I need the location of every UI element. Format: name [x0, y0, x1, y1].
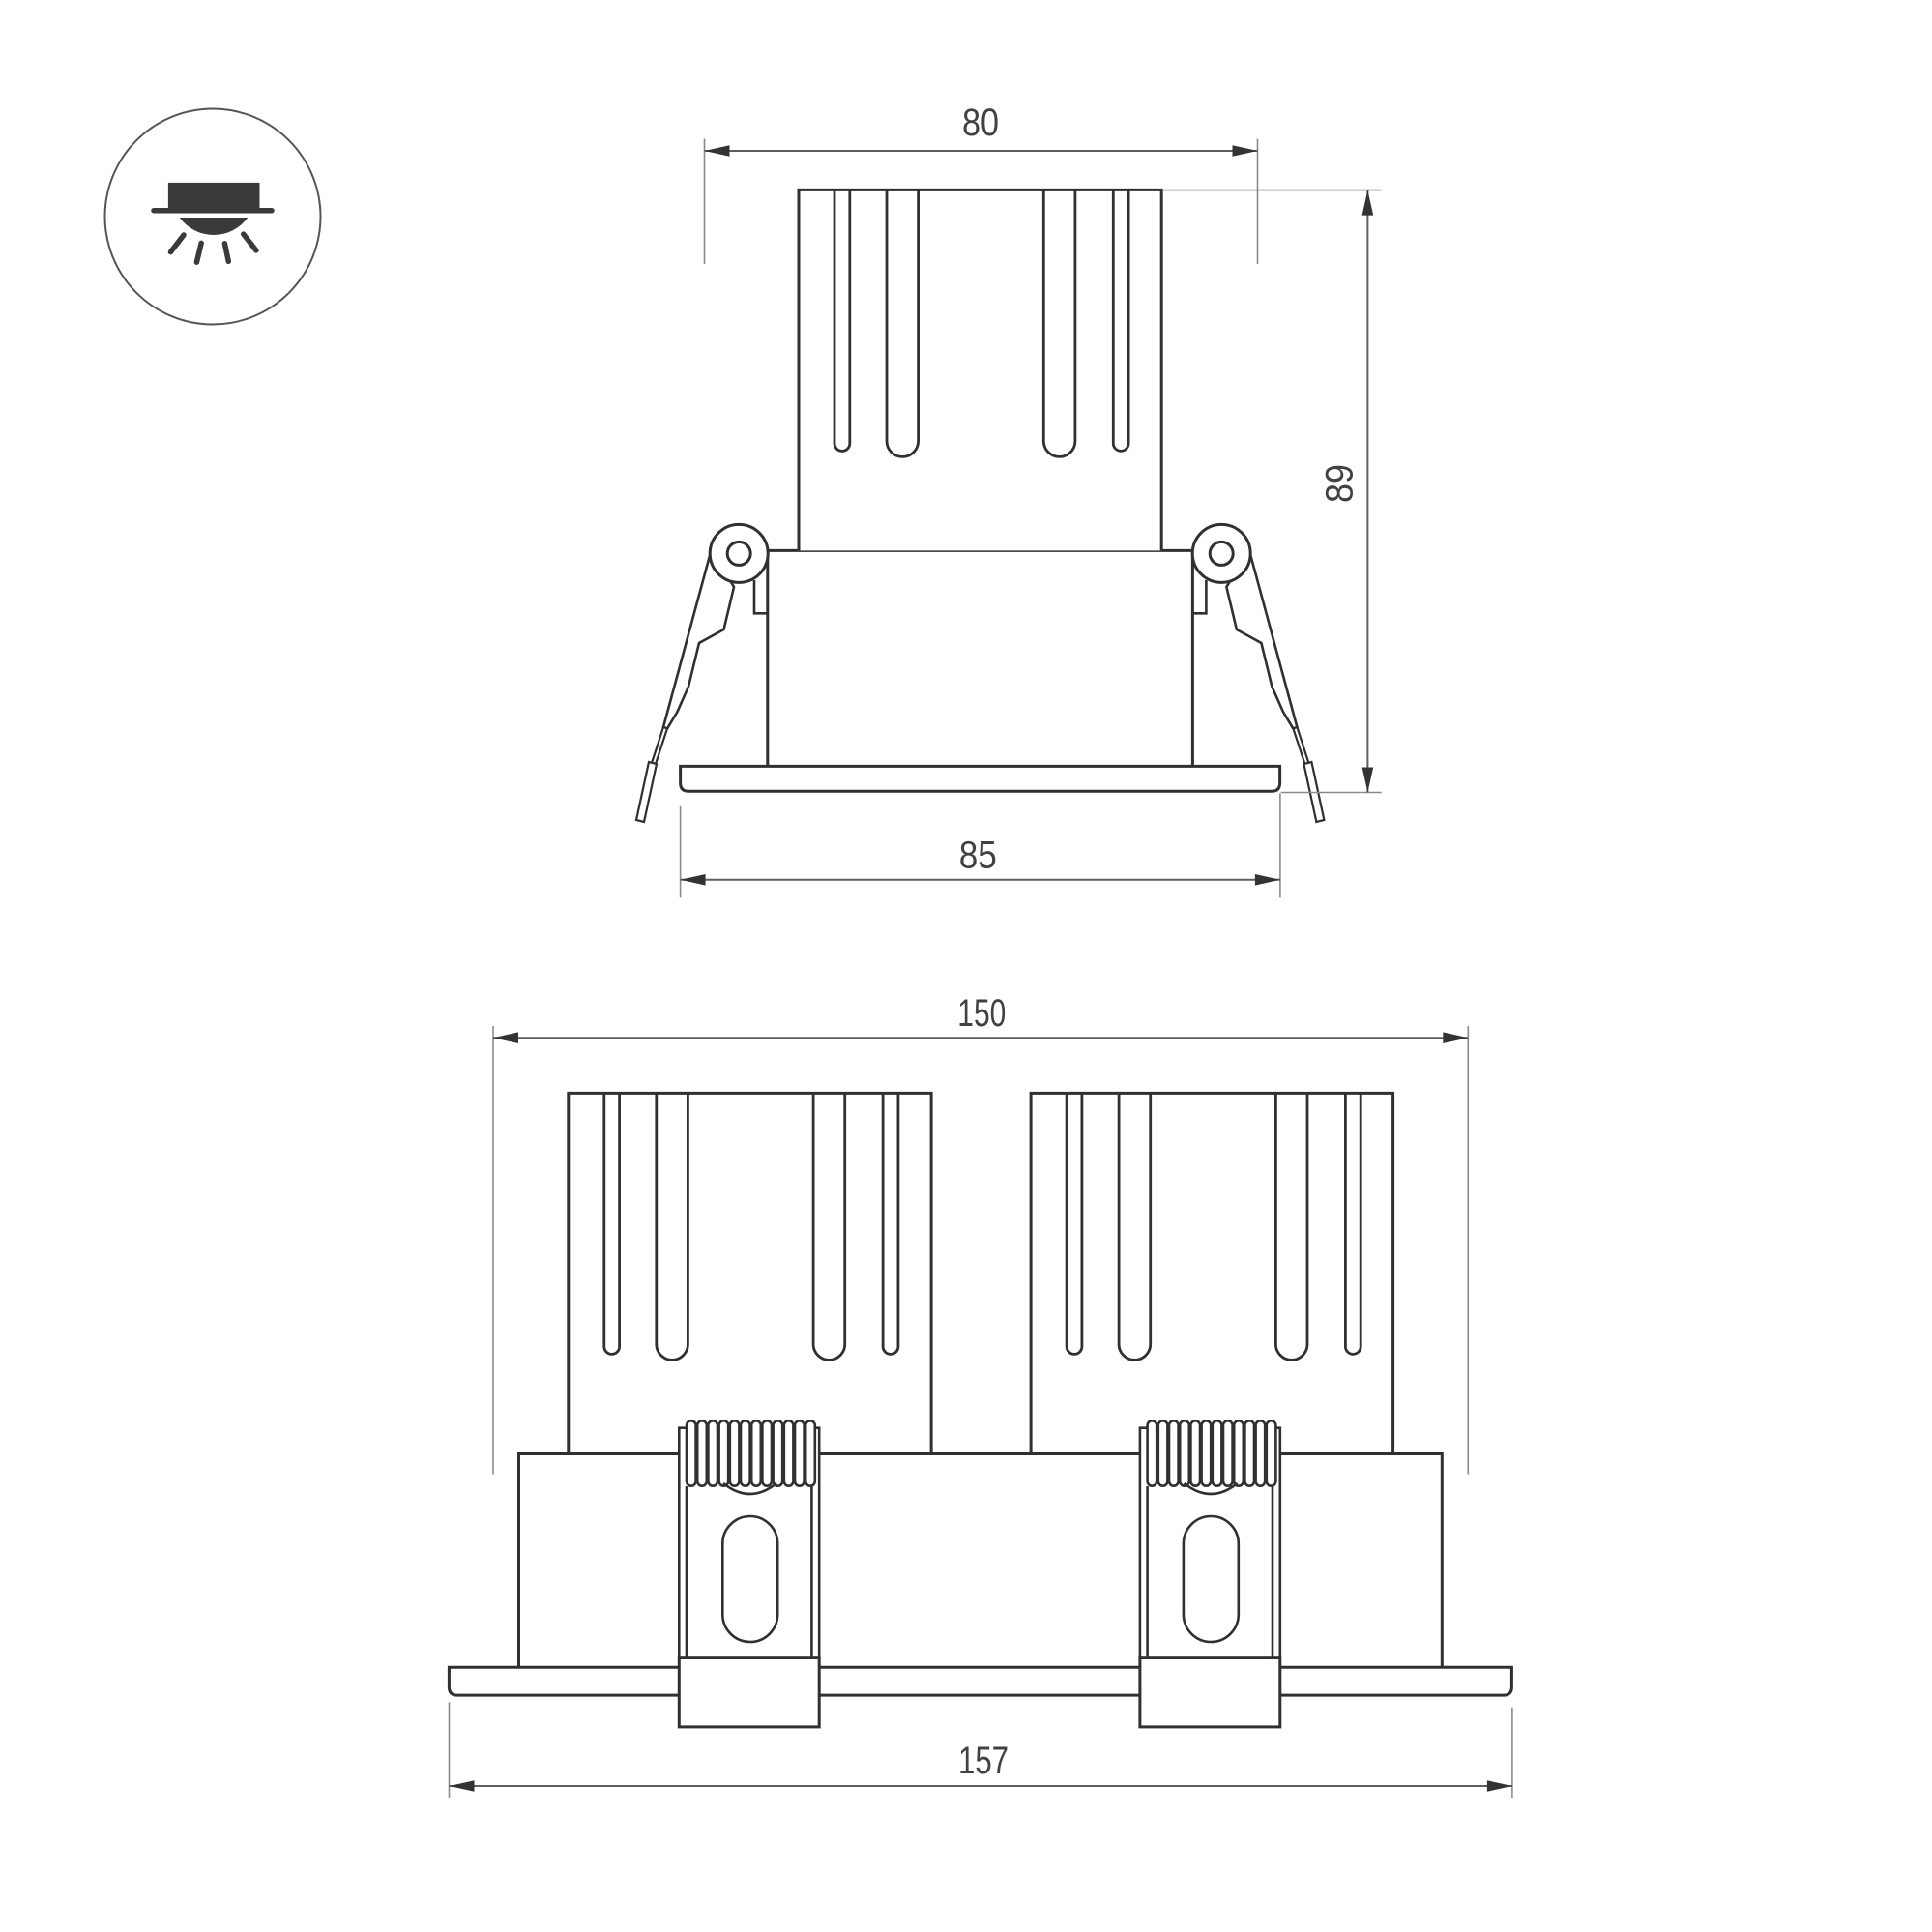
- svg-text:85: 85: [959, 834, 997, 877]
- svg-text:80: 80: [962, 102, 999, 144]
- svg-text:157: 157: [958, 1740, 1009, 1782]
- svg-text:150: 150: [957, 992, 1006, 1035]
- svg-text:89: 89: [1319, 464, 1361, 503]
